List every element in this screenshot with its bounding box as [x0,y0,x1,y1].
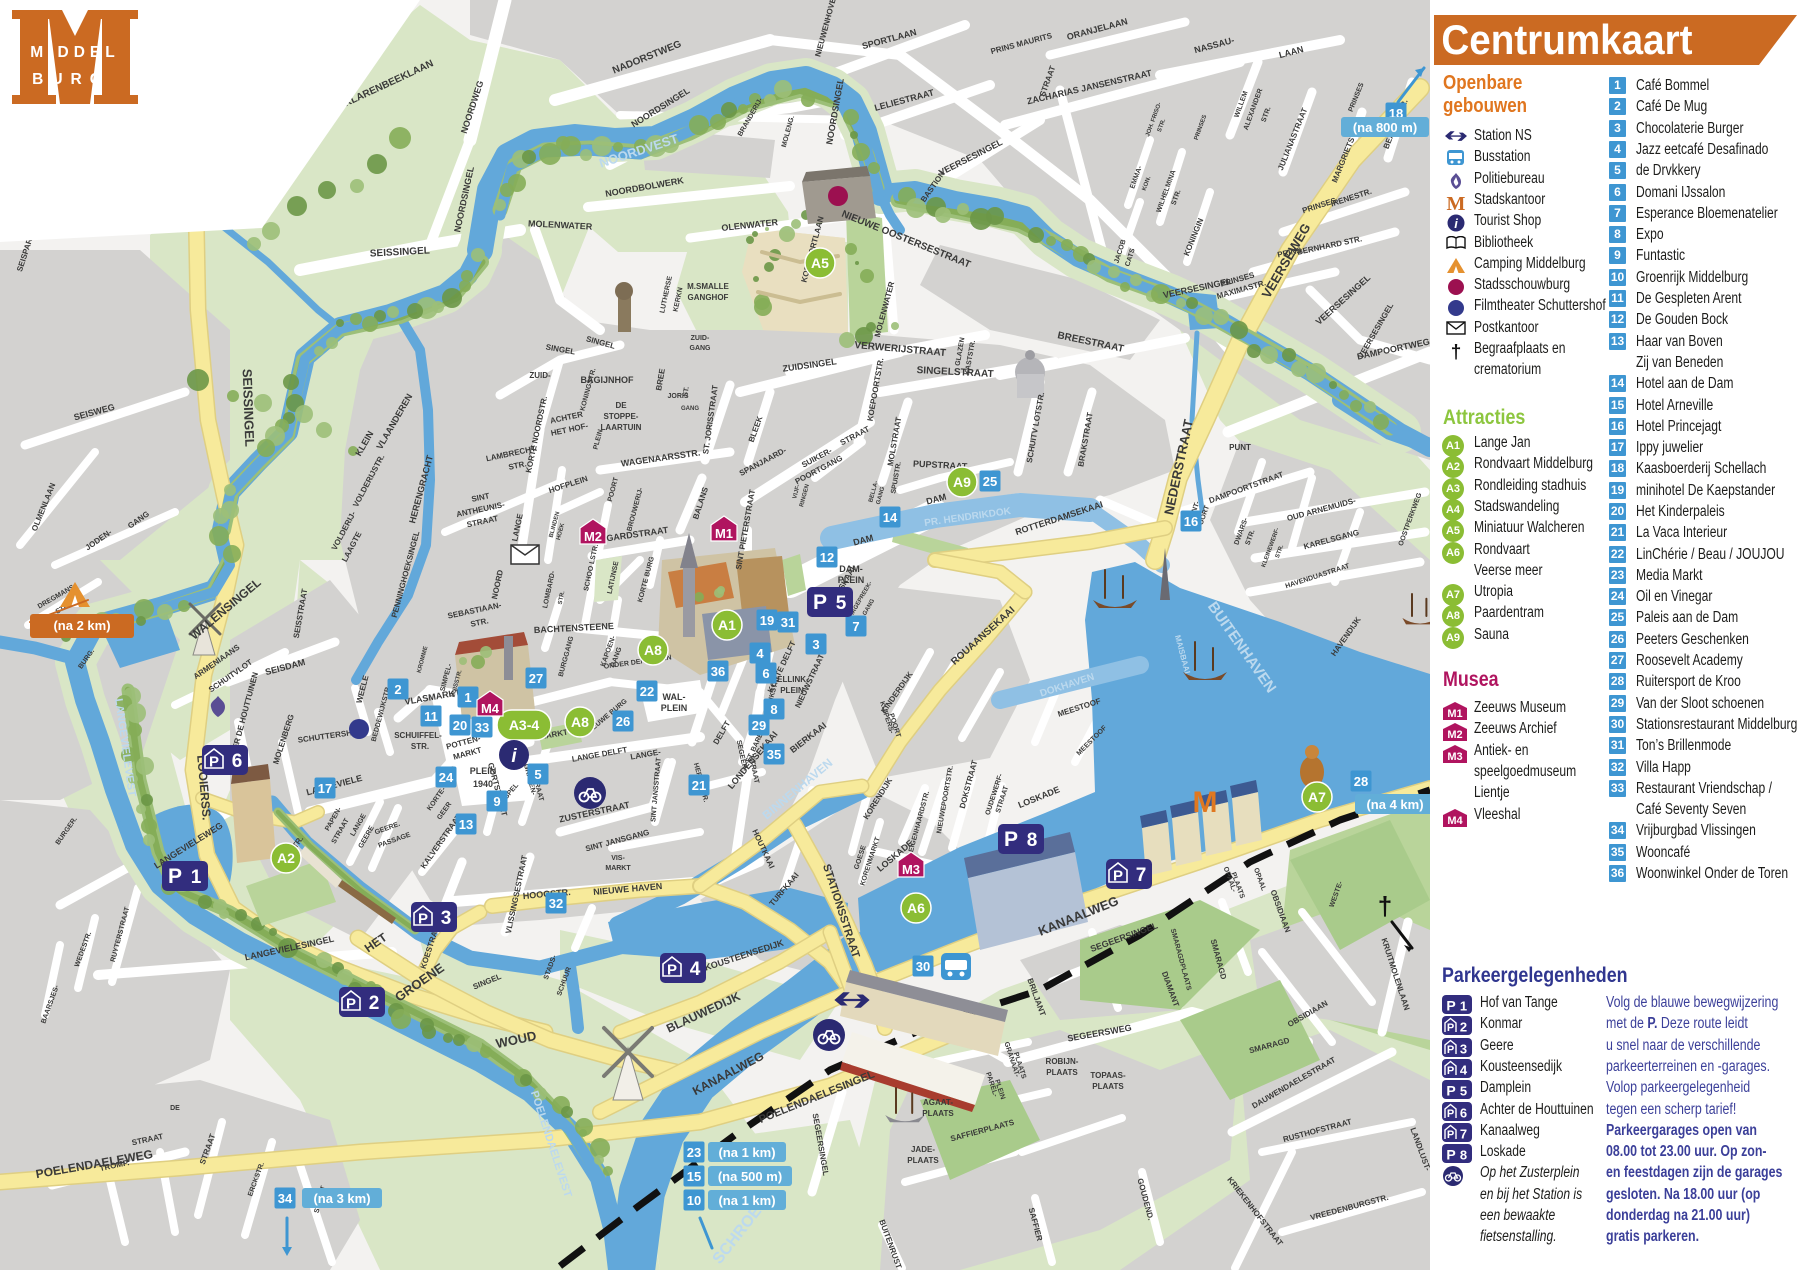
svg-text:6: 6 [1460,1105,1467,1120]
svg-text:ROBIJN-: ROBIJN- [1046,1057,1079,1066]
svg-text:WAL-: WAL- [663,692,686,702]
svg-text:2: 2 [394,682,401,697]
svg-text:2: 2 [369,993,380,1014]
svg-text:19: 19 [760,613,774,628]
svg-text:PUNT: PUNT [1229,443,1251,452]
svg-text:5: 5 [836,593,847,614]
svg-text:A9: A9 [953,474,971,490]
svg-text:AGAAT-: AGAAT- [923,1098,953,1107]
svg-text:ZUID-: ZUID- [529,371,551,380]
svg-text:P: P [1447,1065,1454,1077]
svg-text:30: 30 [916,959,930,974]
svg-text:6: 6 [232,751,243,772]
svg-text:A8: A8 [571,714,589,730]
svg-text:7: 7 [1136,865,1147,886]
svg-text:(na 1 km): (na 1 km) [718,1145,775,1160]
svg-text:JADE-: JADE- [911,1145,935,1154]
svg-text:BELLINK-: BELLINK- [771,675,809,684]
svg-text:P: P [346,996,356,1013]
svg-text:(na 500 m): (na 500 m) [718,1169,782,1184]
svg-text:P: P [1004,828,1018,851]
svg-text:GANG: GANG [681,406,699,412]
svg-text:A5: A5 [811,255,829,271]
svg-text:1: 1 [464,690,471,705]
svg-text:GANGHOF: GANGHOF [688,293,729,302]
svg-text:4: 4 [756,646,764,661]
svg-text:M1: M1 [715,526,733,541]
svg-text:8: 8 [770,702,777,717]
svg-text:P: P [209,754,219,771]
svg-text:24: 24 [439,770,454,785]
svg-text:P: P [1446,998,1455,1014]
svg-text:31: 31 [781,615,795,630]
svg-text:4: 4 [1460,1062,1468,1077]
svg-text:1940: 1940 [473,779,493,789]
svg-text:34: 34 [278,1191,293,1206]
svg-text:35: 35 [767,747,781,762]
svg-text:8: 8 [1460,1148,1467,1163]
svg-text:PLAATS: PLAATS [907,1156,939,1165]
svg-text:(na 4 km): (na 4 km) [1366,797,1423,812]
svg-text:PLEIN: PLEIN [780,686,804,695]
svg-text:SEISSINGEL: SEISSINGEL [240,369,258,448]
svg-text:A3-4: A3-4 [509,717,540,733]
svg-text:PLAATS: PLAATS [1092,1082,1124,1091]
svg-text:13: 13 [459,817,473,832]
svg-text:JORIS: JORIS [667,393,688,400]
svg-text:5: 5 [1460,1084,1467,1099]
svg-text:9: 9 [493,794,500,809]
svg-text:22: 22 [640,684,654,699]
svg-text:P: P [418,911,428,928]
svg-text:M: M [1193,786,1218,819]
svg-text:(na 3 km): (na 3 km) [313,1191,370,1206]
svg-text:1: 1 [1460,999,1467,1014]
svg-text:P: P [1447,1022,1454,1034]
svg-text:M3: M3 [902,862,920,877]
svg-text:16: 16 [1184,514,1198,529]
svg-text:†: † [1378,891,1392,921]
svg-text:i: i [1454,216,1458,231]
svg-text:17: 17 [318,781,332,796]
svg-text:M4: M4 [1447,815,1463,827]
svg-text:Centrumkaart: Centrumkaart [1441,15,1692,63]
svg-text:(na 2 km): (na 2 km) [53,618,110,633]
svg-text:A7: A7 [1308,789,1326,805]
svg-text:(na 1 km): (na 1 km) [718,1193,775,1208]
svg-text:(na 800 m): (na 800 m) [1353,120,1417,135]
svg-text:36: 36 [711,664,725,679]
svg-text:P: P [1447,1044,1454,1056]
svg-text:28: 28 [1354,774,1368,789]
svg-text:M2: M2 [1447,729,1462,741]
svg-text:A1: A1 [718,617,736,633]
svg-text:PLEIN: PLEIN [661,703,688,713]
svg-text:7: 7 [852,619,859,634]
svg-text:25: 25 [983,474,997,489]
svg-text:PLAATS: PLAATS [922,1109,954,1118]
svg-text:15: 15 [687,1169,701,1184]
svg-text:A8: A8 [644,642,662,658]
svg-text:SCHUIFFEL-: SCHUIFFEL- [394,731,442,740]
svg-text:LAARTUIN: LAARTUIN [601,423,642,432]
svg-text:5: 5 [534,767,541,782]
svg-text:VIS-: VIS- [611,855,625,862]
svg-text:10: 10 [687,1193,701,1208]
svg-text:P: P [813,591,827,614]
svg-text:3: 3 [1460,1041,1467,1056]
svg-text:6: 6 [762,666,769,681]
svg-text:M.SMALLE: M.SMALLE [687,282,729,291]
svg-text:26: 26 [616,714,630,729]
svg-text:21: 21 [692,778,706,793]
svg-text:P: P [1446,1147,1455,1163]
svg-text:PLAATS: PLAATS [1046,1068,1078,1077]
svg-text:32: 32 [549,896,563,911]
svg-text:M3: M3 [1447,751,1462,763]
svg-text:P: P [1447,1129,1454,1141]
svg-text:11: 11 [424,709,438,724]
svg-text:2: 2 [1460,1020,1467,1035]
svg-text:12: 12 [820,550,834,565]
svg-text:23: 23 [687,1145,701,1160]
svg-text:8: 8 [1027,830,1038,851]
svg-text:M2: M2 [584,529,602,544]
svg-text:29: 29 [752,718,766,733]
svg-text:DE: DE [170,1105,180,1112]
svg-text:BURG: BURG [32,71,110,88]
svg-text:A2: A2 [277,850,295,866]
svg-text:ZUID-: ZUID- [691,335,710,342]
svg-text:14: 14 [883,510,898,525]
svg-text:1: 1 [191,867,202,888]
svg-text:GANG: GANG [690,345,712,352]
svg-text:M1: M1 [1447,708,1462,720]
svg-text:P: P [1113,868,1123,885]
svg-text:STOPPE-: STOPPE- [604,412,639,421]
svg-text:33: 33 [475,720,489,735]
svg-text:4: 4 [690,959,701,980]
svg-text:DE: DE [615,401,627,410]
svg-text:3: 3 [812,637,819,652]
svg-text:7: 7 [1460,1126,1467,1141]
svg-text:MIDDEL: MIDDEL [30,44,119,61]
svg-text:STR.: STR. [411,742,429,751]
svg-text:TOPAAS-: TOPAAS- [1090,1071,1126,1080]
svg-text:P: P [1447,1108,1454,1120]
svg-text:P: P [667,962,677,979]
svg-text:P: P [168,865,182,888]
svg-text:MARKT: MARKT [605,865,631,872]
svg-text:M4: M4 [481,701,500,716]
svg-text:27: 27 [529,671,543,686]
svg-text:20: 20 [453,718,467,733]
svg-text:P: P [1446,1083,1455,1099]
svg-text:3: 3 [441,908,452,929]
svg-text:A6: A6 [907,900,925,916]
svg-text:i: i [511,746,517,767]
